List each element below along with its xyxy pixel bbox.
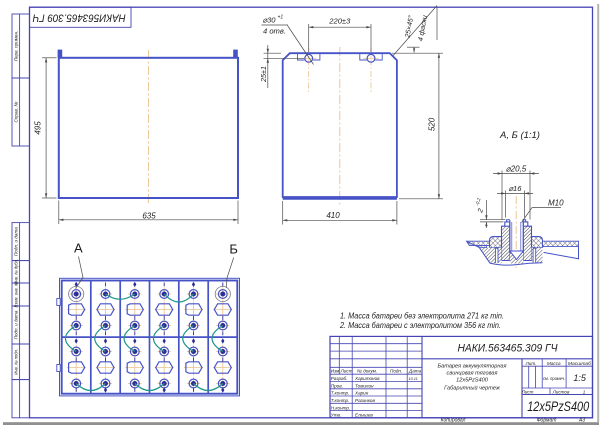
svg-text:НАКИ.563465.309 ГЧ: НАКИ.563465.309 ГЧ	[458, 342, 559, 354]
svg-text:Харин: Харин	[354, 391, 369, 396]
svg-text:1:5: 1:5	[573, 373, 587, 383]
svg-text:Н.контр.: Н.контр.	[331, 405, 350, 410]
svg-text:Подп. и дата: Подп. и дата	[14, 227, 19, 256]
svg-text:Батарея аккумуляторная: Батарея аккумуляторная	[437, 364, 506, 370]
svg-text:Т.контр.: Т.контр.	[331, 398, 350, 403]
svg-text:Подп. и дата: Подп. и дата	[14, 310, 19, 339]
svg-text:Инв. № подл.: Инв. № подл.	[14, 349, 19, 375]
svg-text:Листов: Листов	[552, 389, 570, 394]
svg-text:1. Масса батареи без электроли: 1. Масса батареи без электролита 271 кг …	[340, 310, 504, 320]
svg-text:Разраб.: Разраб.	[331, 376, 348, 381]
svg-text:А, Б (1:1): А, Б (1:1)	[499, 130, 540, 141]
svg-text:Масса: Масса	[547, 361, 561, 366]
svg-text:2. Масса батареи с электролито: 2. Масса батареи с электролитом 356 кг m…	[339, 320, 501, 330]
svg-text:635: 635	[142, 211, 156, 220]
svg-text:520: 520	[428, 117, 437, 131]
svg-text:А3: А3	[578, 418, 585, 424]
svg-text:А: А	[74, 241, 83, 256]
svg-text:НАКИ563465.309 ГЧ: НАКИ563465.309 ГЧ	[32, 12, 126, 24]
svg-text:Перв. примен.: Перв. примен.	[14, 31, 19, 62]
svg-text:410: 410	[326, 211, 340, 220]
svg-text:Томилин: Томилин	[355, 384, 374, 389]
svg-text:Т.контр.: Т.контр.	[331, 391, 350, 396]
svg-text:Габаритный чертеж: Габаритный чертеж	[444, 385, 501, 392]
svg-text:Взам. инв. №: Взам. инв. №	[14, 281, 19, 307]
svg-text:Инв. № дубл.: Инв. № дубл.	[14, 259, 19, 285]
svg-text:Масштаб: Масштаб	[568, 361, 591, 366]
svg-text:⌀16: ⌀16	[508, 184, 522, 193]
svg-text:1: 1	[583, 389, 586, 394]
svg-text:Справ. №: Справ. №	[14, 102, 19, 123]
svg-text:свинцовая тяговая: свинцовая тяговая	[447, 371, 498, 377]
svg-text:4 отв.: 4 отв.	[263, 27, 286, 36]
svg-text:М10: М10	[548, 199, 564, 208]
svg-text:495: 495	[34, 121, 43, 135]
svg-text:Формат: Формат	[537, 418, 557, 424]
svg-text:+1: +1	[278, 15, 284, 21]
svg-text:Изм Лист: Изм Лист	[331, 369, 353, 374]
svg-text:⌀30: ⌀30	[263, 16, 277, 25]
svg-text:№ докум.: № докум.	[357, 369, 377, 374]
svg-text:Подп.: Подп.	[390, 369, 402, 374]
svg-text:Разинков: Разинков	[355, 398, 375, 403]
svg-text:Копировал: Копировал	[441, 418, 466, 424]
svg-text:Лит.: Лит.	[525, 361, 537, 366]
svg-text:Утв.: Утв.	[331, 413, 341, 418]
svg-text:Б: Б	[229, 242, 238, 257]
svg-text:см. примеч.: см. примеч.	[543, 376, 565, 381]
svg-text:Елышев: Елышев	[355, 413, 373, 418]
svg-text:Пров.: Пров.	[331, 384, 343, 389]
svg-text:10.11: 10.11	[409, 377, 418, 381]
svg-text:12х5PzS400: 12х5PzS400	[527, 399, 589, 414]
svg-text:220±3: 220±3	[328, 17, 351, 26]
svg-text:⌀20,5: ⌀20,5	[506, 164, 527, 173]
svg-text:Харитонов: Харитонов	[354, 376, 380, 381]
svg-text:Лист: Лист	[521, 389, 534, 394]
svg-text:12х5PzS400: 12х5PzS400	[456, 378, 489, 384]
svg-text:25±1: 25±1	[259, 66, 268, 83]
svg-text:Дата: Дата	[408, 369, 422, 374]
